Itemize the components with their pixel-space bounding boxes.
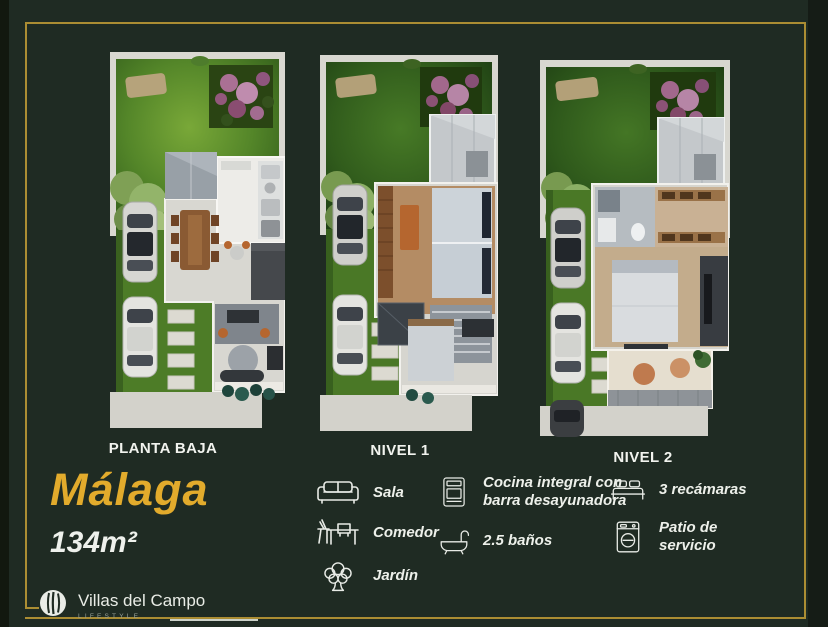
amenity-sala: Sala xyxy=(316,478,439,508)
kitchen xyxy=(217,157,285,243)
bed-icon xyxy=(610,476,646,504)
planta-baja-svg xyxy=(110,52,285,432)
nivel-2-svg xyxy=(540,60,730,437)
model-name: Málaga xyxy=(50,464,209,516)
amenity-patio: Patio de servicio xyxy=(610,518,747,556)
amenity-label: Comedor xyxy=(373,524,439,542)
car-silver xyxy=(333,185,367,265)
floorplan-render-nivel-2 xyxy=(540,60,730,437)
car-white xyxy=(123,297,157,377)
brand-text: Villas del Campo LIFESTYLE xyxy=(78,591,205,620)
left-dark-edge xyxy=(0,0,9,627)
amenity-label: 3 recámaras xyxy=(659,481,747,499)
roof-block xyxy=(658,118,724,186)
model-area: 134m² xyxy=(50,526,137,560)
villas-del-campo-logo-icon xyxy=(38,588,68,623)
brand-name: Villas del Campo xyxy=(78,591,205,611)
floorplan-render-planta-baja xyxy=(110,52,285,432)
floorplan-render-nivel-1 xyxy=(320,55,498,433)
car-white xyxy=(551,303,585,383)
amenities-column-1: Sala Comedor Jardín xyxy=(316,478,439,594)
nivel-1-svg xyxy=(320,55,498,433)
bedroom-beds xyxy=(432,188,492,298)
sofa-icon xyxy=(316,478,360,508)
amenity-label: Sala xyxy=(373,484,404,502)
roof-block xyxy=(430,115,495,183)
amenity-label: 2.5 baños xyxy=(483,532,552,550)
terrace xyxy=(608,350,712,408)
car-dark-partial xyxy=(550,400,584,437)
amenity-cocina: Cocina integral con barra desayunadora xyxy=(438,473,635,511)
sidewalk xyxy=(320,389,472,431)
amenities-column-3: 3 recámaras Patio de servicio xyxy=(610,476,747,556)
car-white xyxy=(333,295,367,375)
brand-tagline: LIFESTYLE xyxy=(78,613,205,620)
floorplan-label-planta-baja: PLANTA BAJA xyxy=(109,440,218,457)
interior-level-2 xyxy=(592,184,728,351)
gold-frame-left xyxy=(25,22,27,609)
patio-roof xyxy=(165,152,217,199)
flyer-page: PLANTA BAJA NIVEL 1 NIVEL 2 Málaga 134m²… xyxy=(0,0,828,627)
brand-logo: Villas del Campo LIFESTYLE xyxy=(38,588,205,623)
amenity-comedor: Comedor xyxy=(316,517,439,549)
dining-table-icon xyxy=(316,517,360,549)
amenity-jardin: Jardín xyxy=(316,558,439,594)
bathtub-icon xyxy=(438,525,470,557)
bathroom xyxy=(595,187,655,247)
right-dark-edge xyxy=(808,0,828,627)
dining-table xyxy=(171,210,219,270)
washing-machine-icon xyxy=(610,518,646,556)
closet-hall xyxy=(655,187,728,247)
master-bedroom xyxy=(595,247,728,351)
amenity-recamaras: 3 recámaras xyxy=(610,476,747,504)
car-silver xyxy=(123,202,157,282)
car-silver xyxy=(551,208,585,288)
gold-frame-corner-stub xyxy=(25,607,39,609)
tree-icon xyxy=(316,558,360,594)
stove-icon xyxy=(438,473,470,511)
floorplan-label-nivel-2: NIVEL 2 xyxy=(613,449,672,466)
gold-frame-right xyxy=(804,22,806,619)
amenity-label: Jardín xyxy=(373,567,418,585)
amenity-label: Patio de servicio xyxy=(659,519,745,554)
gold-frame-top xyxy=(25,22,806,24)
amenities-column-2: Cocina integral con barra desayunadora 2… xyxy=(438,473,635,557)
floorplan-label-nivel-1: NIVEL 1 xyxy=(370,442,429,459)
amenity-banos: 2.5 baños xyxy=(438,525,635,557)
